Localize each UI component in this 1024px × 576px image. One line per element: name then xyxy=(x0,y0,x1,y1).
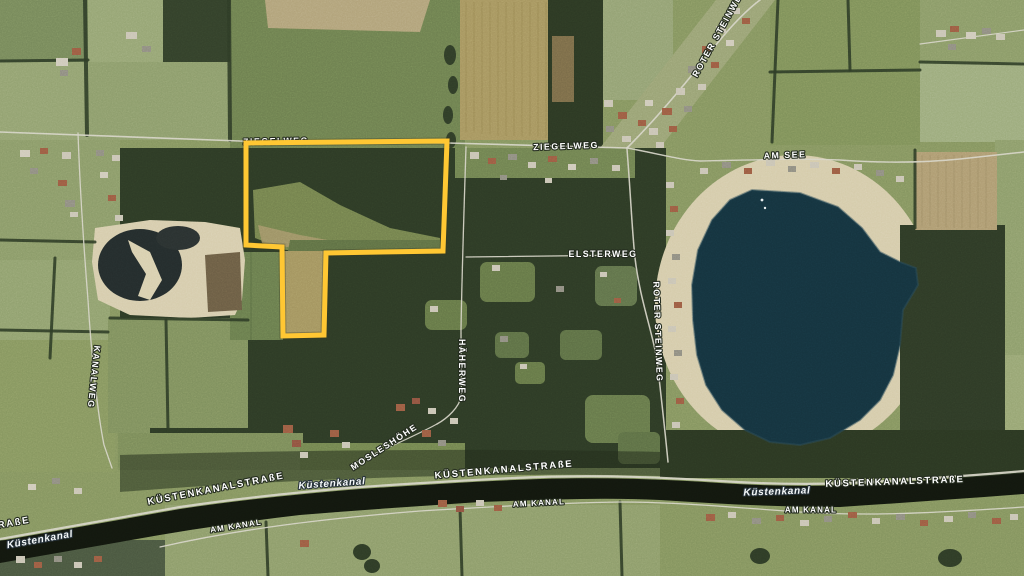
map-canvas[interactable]: ZIEGELWEG ZIEGELWEG AM SEE ROTER STEINWE… xyxy=(0,0,1024,576)
water-label-kuestenkanal-east: Küstenkanal xyxy=(743,485,811,498)
road-label-haeherweg: HÄHERWEG xyxy=(457,339,467,403)
road-label-elsterweg: ELSTERWEG xyxy=(568,249,637,259)
satellite-map-view[interactable]: ZIEGELWEG ZIEGELWEG AM SEE ROTER STEINWE… xyxy=(0,0,1024,576)
road-label-am-kanal-east: AM KANAL xyxy=(785,506,837,515)
satellite-grain-texture xyxy=(0,0,1024,576)
road-label-am-see: AM SEE xyxy=(763,149,806,160)
